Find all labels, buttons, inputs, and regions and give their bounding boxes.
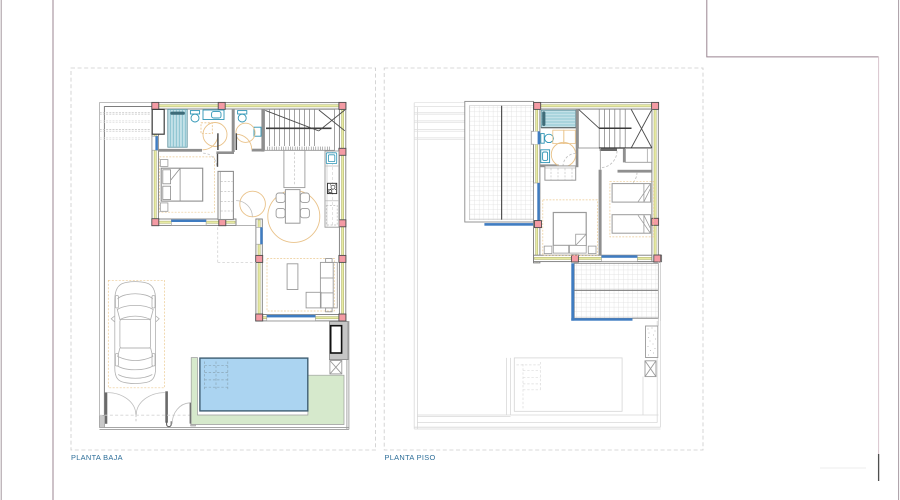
svg-text:PLANTA PISO: PLANTA PISO xyxy=(385,453,436,462)
svg-text:PLANTA BAJA: PLANTA BAJA xyxy=(71,453,123,462)
